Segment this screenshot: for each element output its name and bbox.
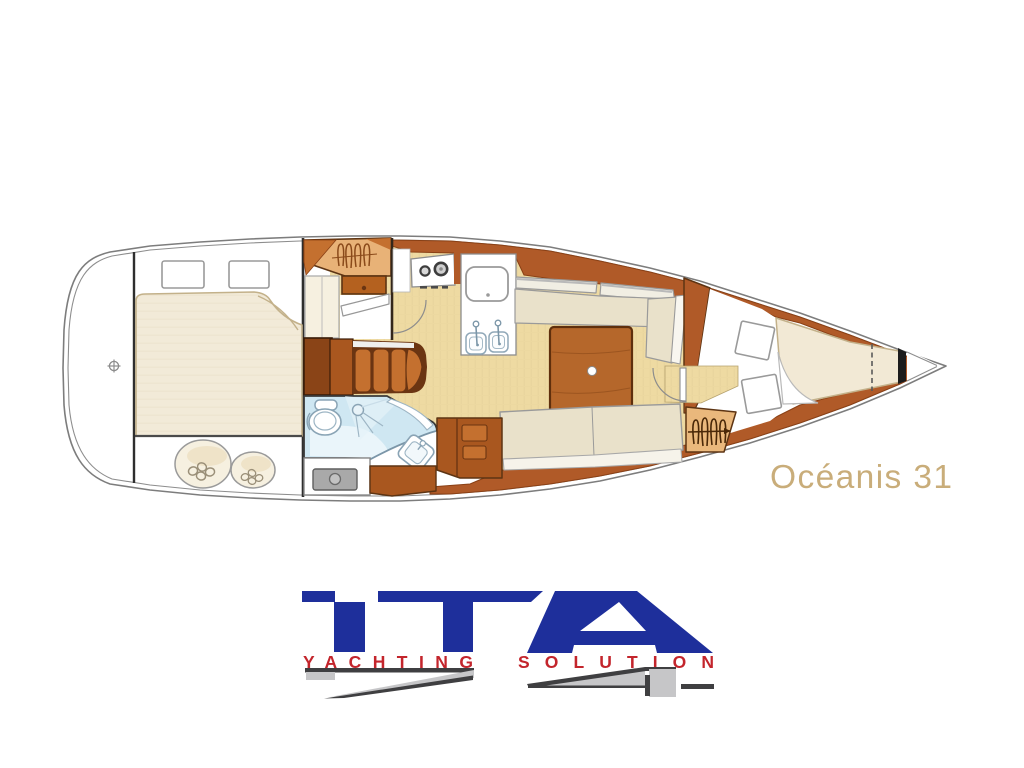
svg-text:SOLUTION: SOLUTION (518, 652, 714, 672)
svg-text:Océanis 31: Océanis 31 (770, 459, 953, 496)
